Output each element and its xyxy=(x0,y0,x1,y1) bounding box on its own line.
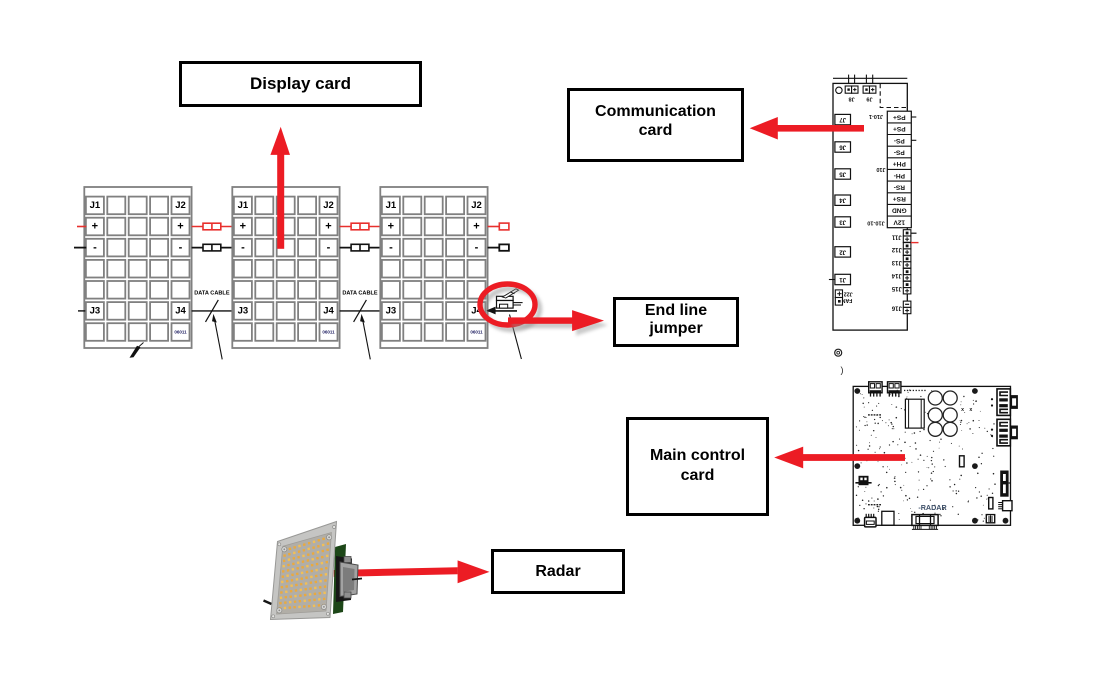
svg-text:x: x xyxy=(969,407,972,413)
svg-text:J4: J4 xyxy=(175,305,186,316)
svg-text:J15: J15 xyxy=(891,285,902,291)
svg-text:+: + xyxy=(92,221,98,233)
svg-text:J4: J4 xyxy=(323,305,334,316)
svg-text:DATA CABLE: DATA CABLE xyxy=(342,290,378,296)
svg-text:PS-: PS- xyxy=(894,149,905,156)
svg-text:PS+: PS+ xyxy=(893,114,906,121)
svg-text:-: - xyxy=(389,242,393,254)
svg-text:DATA CABLE: DATA CABLE xyxy=(194,290,230,296)
svg-text:J3: J3 xyxy=(238,305,249,316)
svg-text:J3: J3 xyxy=(839,219,846,226)
svg-text:PS-: PS- xyxy=(894,137,905,144)
svg-text:J1: J1 xyxy=(839,276,846,283)
svg-text:+: + xyxy=(473,221,479,233)
svg-text:J22: J22 xyxy=(844,291,853,297)
svg-text:+: + xyxy=(388,221,394,233)
svg-text:J9: J9 xyxy=(866,95,872,101)
svg-text:): ) xyxy=(841,365,844,375)
svg-text:-: - xyxy=(327,242,331,254)
svg-text:-: - xyxy=(475,242,479,254)
svg-text:+: + xyxy=(325,221,331,233)
svg-text:J2: J2 xyxy=(323,200,334,211)
svg-text:RS-: RS- xyxy=(894,183,905,190)
svg-text:PS+: PS+ xyxy=(893,125,906,132)
svg-text:RS+: RS+ xyxy=(893,195,906,202)
svg-text:+: + xyxy=(177,221,183,233)
svg-text:J7: J7 xyxy=(839,116,846,123)
svg-text:J2: J2 xyxy=(471,200,482,211)
svg-text:PH-: PH- xyxy=(894,172,905,179)
svg-text:J16: J16 xyxy=(891,305,902,311)
svg-text:12V: 12V xyxy=(893,218,905,225)
svg-text:x: x xyxy=(961,407,964,413)
svg-text:J1: J1 xyxy=(386,200,397,211)
svg-text:J3: J3 xyxy=(386,305,397,316)
svg-text:J11: J11 xyxy=(891,233,901,239)
svg-text:-: - xyxy=(241,242,245,254)
svg-text:J10-1: J10-1 xyxy=(869,113,883,119)
svg-text:J14: J14 xyxy=(891,272,902,278)
svg-text:J1: J1 xyxy=(90,200,101,211)
svg-text:+: + xyxy=(240,221,246,233)
svg-text:J6: J6 xyxy=(839,144,846,151)
svg-text:J2: J2 xyxy=(839,248,846,255)
svg-text:06011: 06011 xyxy=(470,330,483,335)
svg-text:-: - xyxy=(93,242,97,254)
svg-text:J1: J1 xyxy=(238,200,249,211)
svg-text:-: - xyxy=(179,242,183,254)
svg-text:GND: GND xyxy=(892,207,907,214)
svg-text:-RADAR: -RADAR xyxy=(918,503,947,512)
svg-text:06011: 06011 xyxy=(322,330,335,335)
svg-text:J8: J8 xyxy=(848,95,854,101)
svg-text:J10-10: J10-10 xyxy=(867,220,884,226)
svg-text:PH+: PH+ xyxy=(893,160,906,167)
svg-text:J3: J3 xyxy=(90,305,101,316)
svg-text:J2: J2 xyxy=(175,200,186,211)
svg-text:J5: J5 xyxy=(839,171,846,178)
svg-text:FAN: FAN xyxy=(842,297,853,303)
svg-text:06011: 06011 xyxy=(174,330,187,335)
svg-text:J12: J12 xyxy=(891,246,902,252)
svg-text:J4: J4 xyxy=(839,197,846,204)
svg-text:J10: J10 xyxy=(876,166,885,172)
svg-text:J13: J13 xyxy=(891,259,902,265)
